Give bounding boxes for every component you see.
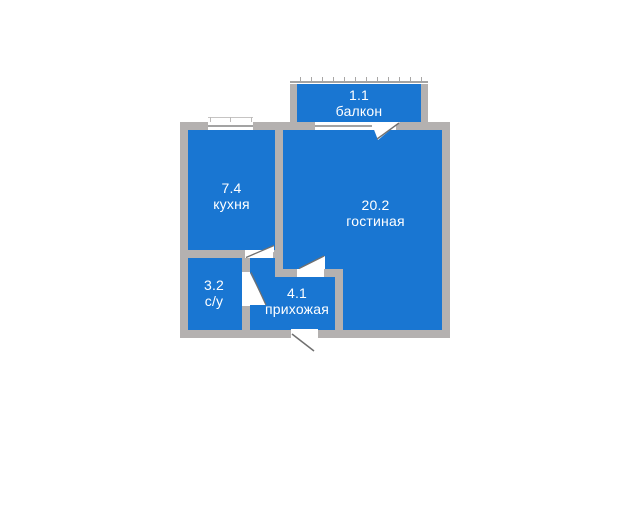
kitchen-window-tick xyxy=(251,117,252,122)
room-living-annex xyxy=(343,269,442,330)
railing-glass-line xyxy=(290,81,428,83)
kitchen-window-tick xyxy=(210,117,211,122)
balcony-name: балкон xyxy=(297,103,421,119)
balcony-label: 1.1 балкон xyxy=(297,87,421,119)
living-room-door-opening xyxy=(297,269,324,277)
balcony-area: 1.1 xyxy=(297,87,421,103)
kitchen-door-opening xyxy=(245,250,273,258)
kitchen-area: 7.4 xyxy=(188,180,275,196)
wall-kitchen-living-divider xyxy=(275,130,283,277)
living-room-window xyxy=(315,122,372,130)
floorplan-canvas: 1.1 балкон 7.4 кухня 20.2 гостиная 3.2 с… xyxy=(0,0,630,525)
bathroom-area: 3.2 xyxy=(186,277,242,293)
hallway-label: 4.1 прихожая xyxy=(253,285,341,317)
kitchen-window xyxy=(208,122,253,130)
kitchen-name: кухня xyxy=(188,196,275,212)
living-room-area: 20.2 xyxy=(303,197,448,213)
bathroom-label: 3.2 с/у xyxy=(186,277,242,309)
living-room-label: 20.2 гостиная xyxy=(303,197,448,229)
hallway-area: 4.1 xyxy=(253,285,341,301)
living-room-name: гостиная xyxy=(303,213,448,229)
entrance-door-opening xyxy=(291,329,318,338)
kitchen-label: 7.4 кухня xyxy=(188,180,275,212)
hallway-name: прихожая xyxy=(253,301,341,317)
balcony-railing-window xyxy=(290,77,428,84)
balcony-door-opening xyxy=(372,122,396,130)
kitchen-window-tick xyxy=(230,117,231,122)
kitchen-window-glass-line xyxy=(208,125,253,127)
bathroom-door-opening xyxy=(242,272,250,306)
bathroom-name: с/у xyxy=(186,293,242,309)
living-window-glass-line xyxy=(315,125,372,127)
